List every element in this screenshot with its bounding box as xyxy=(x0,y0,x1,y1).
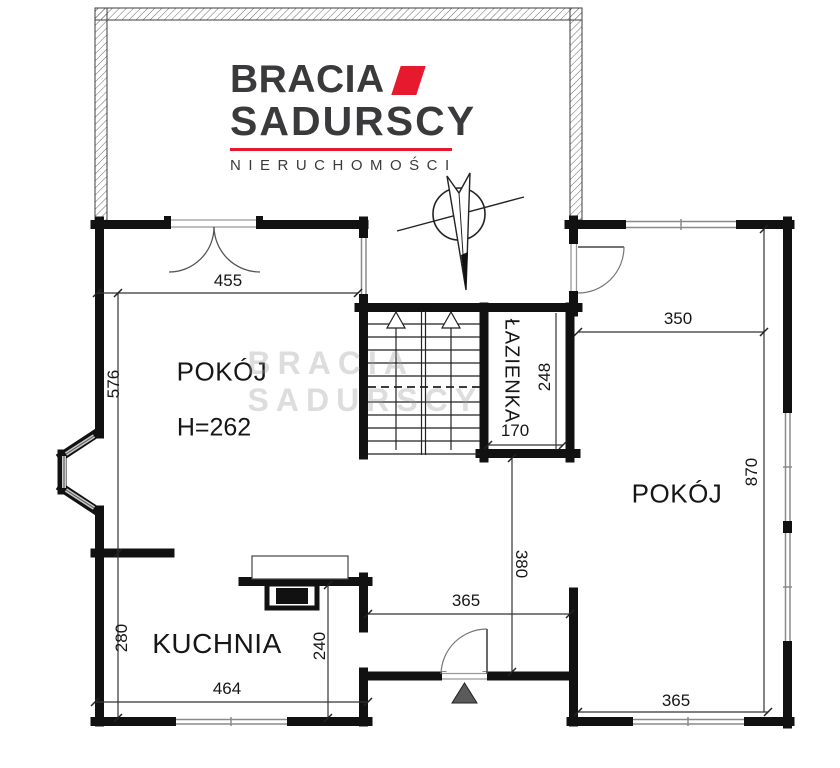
floor-plan: BRACIA SADURSCY NIERUCHOMOŚCI POKÓJ H=26… xyxy=(0,0,840,768)
right-room-terrace-door xyxy=(569,244,624,293)
brand-tagline: NIERUCHOMOŚCI xyxy=(230,157,476,174)
north-arrow-icon xyxy=(397,173,524,290)
terrace-french-door xyxy=(164,216,263,272)
dim-kitchen-depth-right: 240 xyxy=(310,632,330,660)
dim-room-left-depth: 576 xyxy=(104,370,124,398)
ceiling-height-note: H=262 xyxy=(177,414,251,443)
dim-room-right-depth: 870 xyxy=(742,458,762,486)
dim-bathroom-width: 170 xyxy=(501,421,529,441)
dim-bathroom-depth: 248 xyxy=(535,363,555,391)
room-label-bathroom: ŁAZIENKA xyxy=(500,319,523,424)
dim-hall-width: 365 xyxy=(452,591,480,611)
staircase xyxy=(368,311,480,455)
entrance-marker-icon xyxy=(452,683,477,703)
brand-underline xyxy=(230,148,452,151)
dim-kitchen-width: 464 xyxy=(213,679,241,699)
brand-mark-icon xyxy=(391,66,425,95)
entrance-door xyxy=(441,629,487,681)
brand-line1-text: BRACIA xyxy=(230,60,385,100)
dim-kitchen-depth-left: 280 xyxy=(112,624,132,652)
dim-room-right-width: 350 xyxy=(664,309,692,329)
dim-hall-depth: 380 xyxy=(511,550,531,578)
dim-room-right-bottom-width: 365 xyxy=(662,691,690,711)
dim-room-left-width: 455 xyxy=(214,271,242,291)
brand-line1: BRACIA xyxy=(230,60,476,100)
room-label-right: POKÓJ xyxy=(632,479,723,510)
brand-line2: SADURSCY xyxy=(230,100,476,142)
brand-logo: BRACIA SADURSCY NIERUCHOMOŚCI xyxy=(230,60,476,174)
room-label-top-left: POKÓJ xyxy=(177,357,268,388)
room-label-kitchen: KUCHNIA xyxy=(152,628,282,660)
